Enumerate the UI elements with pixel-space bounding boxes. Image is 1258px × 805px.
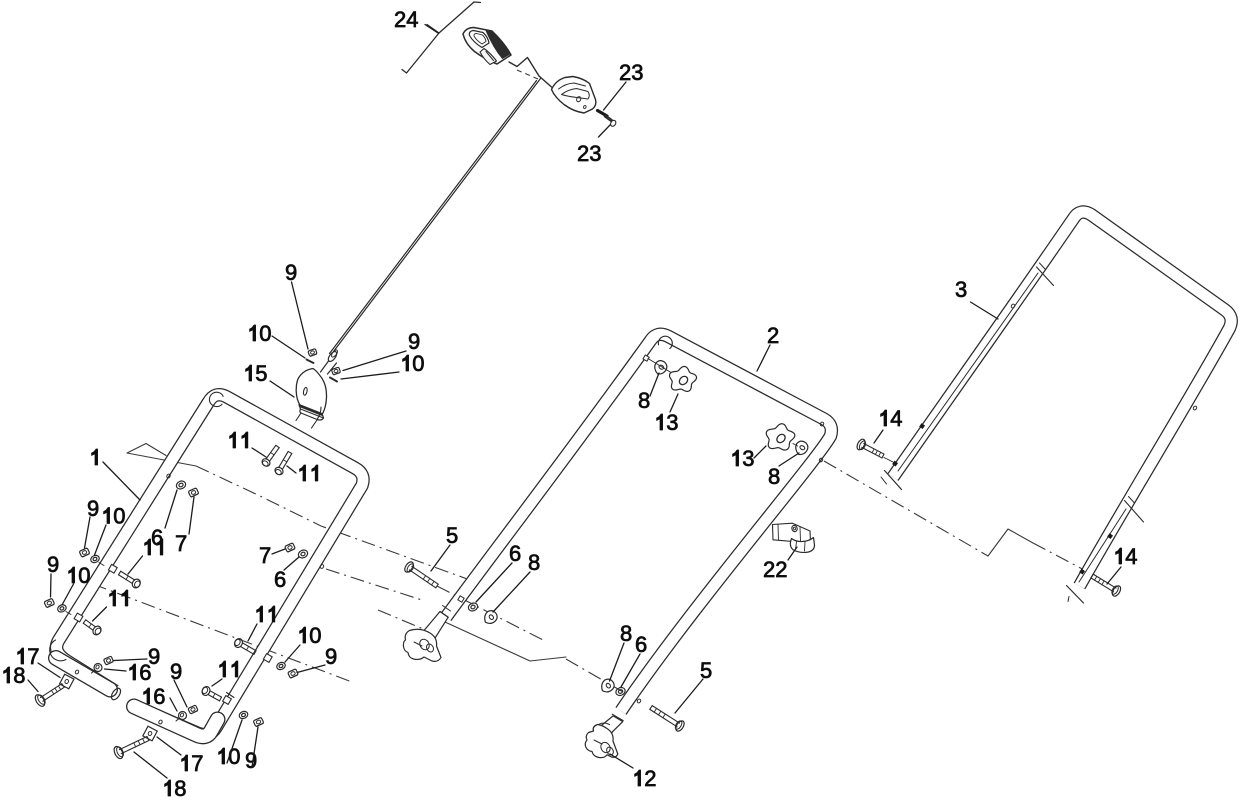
svg-text:4: 4 <box>890 406 902 431</box>
svg-text:5: 5 <box>255 361 267 386</box>
svg-text:2: 2 <box>767 323 779 348</box>
svg-text:0: 0 <box>78 563 90 588</box>
svg-text:6: 6 <box>274 567 286 592</box>
svg-text:8: 8 <box>768 464 780 489</box>
svg-text:6: 6 <box>509 541 521 566</box>
svg-text:8: 8 <box>528 550 540 575</box>
svg-text:3: 3 <box>666 410 678 435</box>
svg-text:8: 8 <box>620 621 632 646</box>
svg-text:7: 7 <box>259 543 271 568</box>
svg-text:9: 9 <box>87 496 99 521</box>
svg-text:8: 8 <box>638 388 650 413</box>
svg-text:0: 0 <box>309 623 321 648</box>
svg-text:2: 2 <box>775 557 787 582</box>
svg-text:5: 5 <box>446 523 458 548</box>
svg-text:2: 2 <box>644 766 656 791</box>
svg-text:7: 7 <box>175 531 187 556</box>
svg-text:6: 6 <box>139 660 151 685</box>
svg-text:0: 0 <box>228 744 240 769</box>
svg-text:8: 8 <box>13 663 25 688</box>
svg-text:0: 0 <box>412 351 424 376</box>
svg-text:6: 6 <box>153 684 165 709</box>
svg-text:7: 7 <box>191 751 203 776</box>
svg-text:2: 2 <box>577 141 589 166</box>
svg-text:9: 9 <box>170 659 182 684</box>
svg-text:7: 7 <box>27 644 39 669</box>
svg-text:2: 2 <box>763 557 775 582</box>
svg-text:2: 2 <box>619 60 631 85</box>
svg-text:3: 3 <box>631 60 643 85</box>
svg-text:0: 0 <box>113 504 125 529</box>
svg-text:9: 9 <box>47 552 59 577</box>
svg-text:3: 3 <box>589 141 601 166</box>
svg-text:8: 8 <box>174 776 186 801</box>
svg-text:6: 6 <box>635 632 647 657</box>
svg-text:0: 0 <box>259 321 271 346</box>
svg-text:9: 9 <box>325 644 337 669</box>
svg-text:3: 3 <box>955 277 967 302</box>
svg-text:9: 9 <box>245 748 257 773</box>
svg-text:3: 3 <box>742 446 754 471</box>
svg-text:4: 4 <box>406 7 418 32</box>
svg-text:5: 5 <box>700 658 712 683</box>
svg-text:2: 2 <box>394 7 406 32</box>
svg-text:9: 9 <box>285 260 297 285</box>
svg-text:4: 4 <box>1125 544 1137 569</box>
